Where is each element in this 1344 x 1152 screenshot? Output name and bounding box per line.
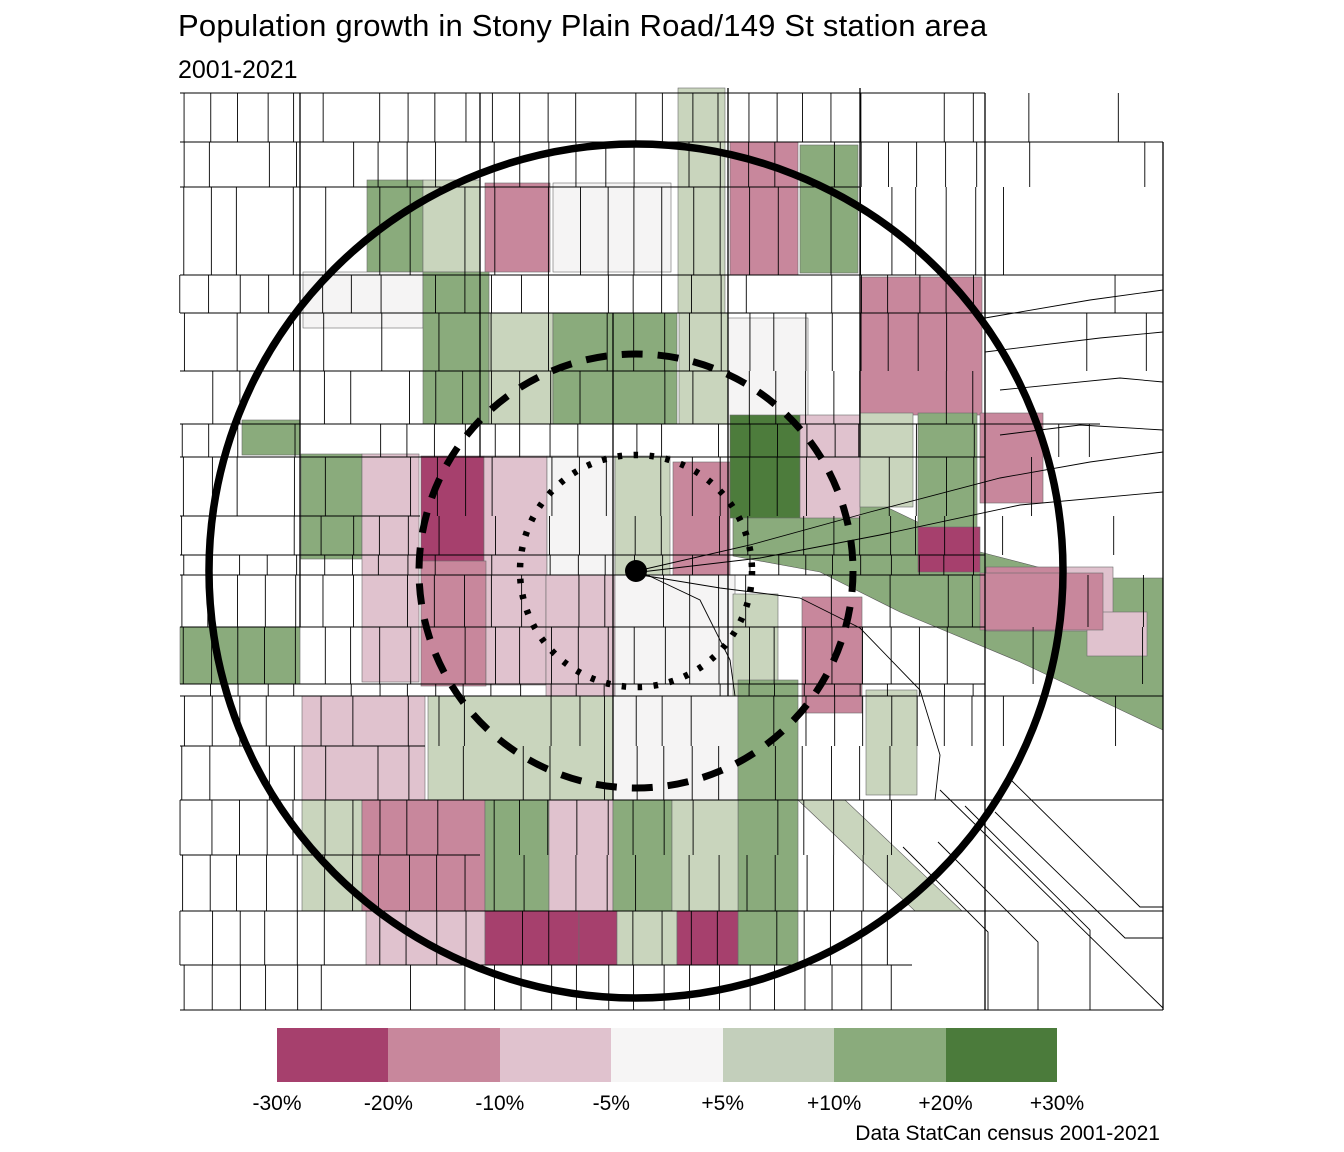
census-block	[860, 413, 913, 507]
census-block	[980, 413, 1043, 503]
legend-bin	[500, 1028, 611, 1082]
census-block	[613, 800, 672, 911]
census-block	[421, 561, 486, 686]
legend-tick-label: +30%	[1012, 1092, 1102, 1116]
legend-bin	[834, 1028, 945, 1082]
census-block	[918, 527, 980, 572]
legend-tick-label: -10%	[455, 1092, 545, 1116]
census-block	[302, 696, 425, 800]
legend-tick-label: -30%	[232, 1092, 322, 1116]
census-block	[918, 413, 977, 530]
census-block	[549, 800, 613, 911]
census-block	[485, 911, 579, 965]
census-block	[728, 318, 808, 424]
page-subtitle: 2001-2021	[178, 56, 298, 85]
census-block	[301, 454, 362, 559]
legend-tick-label: +20%	[901, 1092, 991, 1116]
census-block	[484, 456, 547, 575]
census-block	[677, 911, 738, 965]
census-block	[421, 456, 484, 575]
census-block	[672, 800, 738, 911]
data-source-caption: Data StatCan census 2001-2021	[600, 1122, 1160, 1146]
census-block	[800, 415, 860, 518]
legend-tick-label: -20%	[343, 1092, 433, 1116]
legend-bin	[946, 1028, 1057, 1082]
legend-tick-label: +5%	[678, 1092, 768, 1116]
census-block	[486, 575, 546, 685]
census-block	[553, 183, 671, 272]
census-block	[423, 272, 489, 424]
census-block	[673, 462, 730, 575]
census-block	[730, 415, 800, 518]
legend-tick-label: +10%	[789, 1092, 879, 1116]
census-block	[579, 911, 617, 965]
census-block	[980, 573, 1103, 630]
census-block	[679, 313, 728, 424]
legend-tick-label: -5%	[566, 1092, 656, 1116]
station-area-map	[170, 85, 1170, 1015]
map-canvas	[170, 85, 1170, 1015]
station-marker	[625, 560, 647, 582]
census-block	[428, 696, 613, 800]
legend-colorbar	[277, 1028, 1057, 1082]
legend-bin	[277, 1028, 388, 1082]
census-block	[800, 145, 858, 273]
legend-bin	[611, 1028, 722, 1082]
census-block	[617, 911, 677, 965]
census-block	[738, 680, 798, 965]
legend-bin	[388, 1028, 499, 1082]
census-block	[180, 627, 300, 684]
page-title: Population growth in Stony Plain Road/14…	[178, 8, 987, 44]
census-block	[553, 313, 677, 424]
legend-bin	[723, 1028, 834, 1082]
census-block	[242, 420, 300, 455]
census-block	[615, 456, 670, 576]
page: Population growth in Stony Plain Road/14…	[0, 0, 1344, 1152]
census-block	[367, 180, 423, 272]
